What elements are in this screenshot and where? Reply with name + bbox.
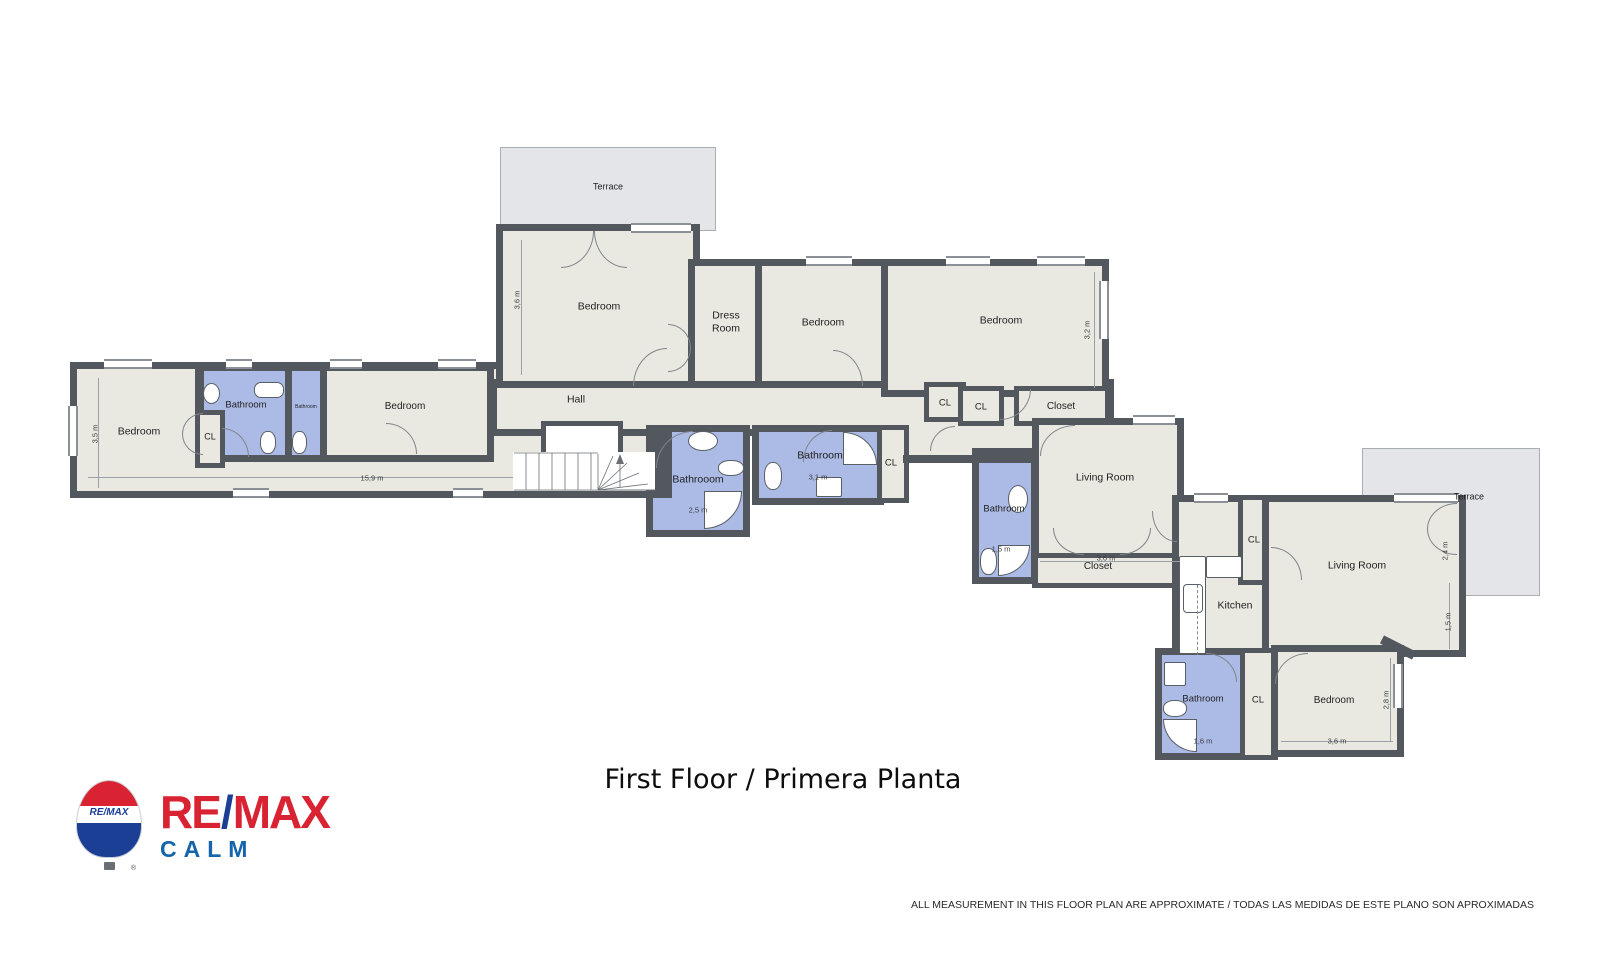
label-hall: Hall — [567, 394, 585, 407]
label-bathroom: Bathroom — [797, 450, 843, 463]
label-bedroom: Bedroom — [1314, 695, 1355, 707]
room-bedroom-3 — [881, 259, 1109, 397]
disclaimer-text: ALL MEASUREMENT IN THIS FLOOR PLAN ARE A… — [911, 899, 1534, 911]
window — [1133, 415, 1175, 425]
label-closet: Closet — [1047, 401, 1075, 413]
window — [1393, 664, 1403, 708]
label-bedroom: Bedroom — [980, 315, 1023, 328]
label-kitchen: Kitchen — [1217, 600, 1252, 613]
window — [226, 359, 252, 369]
dimension-label: 3,6 m — [1328, 737, 1347, 746]
fixture-tub-icon — [254, 382, 284, 398]
dimension-label: 15,9 m — [361, 474, 384, 483]
window — [806, 256, 852, 266]
window — [1099, 281, 1109, 339]
dimension-label: 1,6 m — [1194, 737, 1213, 746]
label-cl: CL — [885, 457, 897, 468]
fixture-box-icon — [1164, 662, 1186, 686]
dimension-label: 3,6 m — [513, 291, 522, 310]
window — [438, 359, 476, 369]
dimension-label: 2,5 m — [689, 506, 708, 515]
window — [453, 488, 483, 498]
dimension-label: 3,2 m — [1083, 321, 1092, 340]
window — [946, 256, 990, 266]
label-bedroom: Bedroom — [802, 317, 845, 330]
fixture-toilet-icon — [260, 431, 276, 454]
wordmark-re: RE — [160, 786, 220, 838]
label-bedroom: Bedroom — [578, 301, 621, 314]
wall-segment — [903, 455, 1037, 463]
label-terrace: Terrace — [1454, 492, 1484, 503]
label-bedroom: Bedroom — [385, 401, 426, 413]
fixture-fridge-icon — [1183, 584, 1203, 613]
label-bathroom: Bathroom — [1182, 693, 1223, 704]
dimension-label: 1,5 m — [992, 545, 1011, 554]
label-bedroom: Bedroom — [118, 426, 161, 439]
wordmark-office: CALM — [160, 836, 329, 863]
remax-logo: RE/MAX ® RE/MAX CALM — [74, 780, 329, 872]
label-dress-room: Dress Room — [712, 309, 740, 334]
label-cl: CL — [975, 401, 987, 412]
fixture-dashed-icon — [1197, 585, 1198, 655]
label-cl: CL — [939, 397, 951, 408]
window — [1037, 256, 1085, 266]
fixture-sink-icon — [688, 431, 718, 451]
wordmark-slash: / — [220, 786, 233, 838]
label-cl: CL — [204, 432, 216, 443]
dimension-label: 2,8 m — [1382, 691, 1391, 710]
fixture-box-icon — [1206, 556, 1242, 578]
dimension-label: 3,1 m — [809, 473, 828, 482]
floor-plan-page: TerraceBedroomDress RoomBedroomBedroomHa… — [0, 0, 1600, 958]
window — [631, 223, 691, 233]
dimension-line — [1094, 272, 1095, 388]
label-cl: CL — [1252, 694, 1264, 705]
dimension-label: 2,4 m — [1441, 542, 1450, 561]
window — [330, 359, 362, 369]
balloon-wordmark: RE/MAX — [77, 807, 141, 818]
remax-balloon-icon: RE/MAX ® — [74, 780, 144, 872]
dimension-label: 1,5 m — [1444, 613, 1453, 632]
window — [1394, 493, 1458, 503]
remax-wordmark: RE/MAX CALM — [160, 789, 329, 863]
label-closet: Closet — [1084, 561, 1112, 573]
label-living-room: Living Room — [1328, 560, 1386, 573]
window — [104, 359, 152, 369]
label-cl: CL — [1248, 534, 1260, 545]
stairs-icon — [512, 446, 662, 492]
registered-mark: ® — [131, 865, 136, 872]
window — [1194, 493, 1228, 503]
label-bathroom: Bathroom — [225, 399, 266, 410]
label-bathroom: Bathroom — [983, 503, 1024, 514]
wordmark-max: MAX — [233, 786, 329, 838]
fixture-sink-icon — [203, 383, 220, 404]
window — [233, 488, 269, 498]
dimension-label: 3,5 m — [91, 425, 100, 444]
fixture-toilet-icon — [292, 431, 307, 454]
label-bathroom: Bathroom — [295, 404, 317, 410]
dimension-label: 3,6 m — [1097, 554, 1116, 563]
balloon-basket — [104, 862, 115, 870]
floor-title: First Floor / Primera Planta — [605, 764, 962, 795]
label-living-room: Living Room — [1076, 472, 1134, 485]
label-terrace: Terrace — [593, 182, 623, 193]
window — [68, 406, 78, 456]
label-bathrooom: Bathrooom — [672, 474, 723, 487]
fixture-toilet-icon — [764, 462, 782, 490]
